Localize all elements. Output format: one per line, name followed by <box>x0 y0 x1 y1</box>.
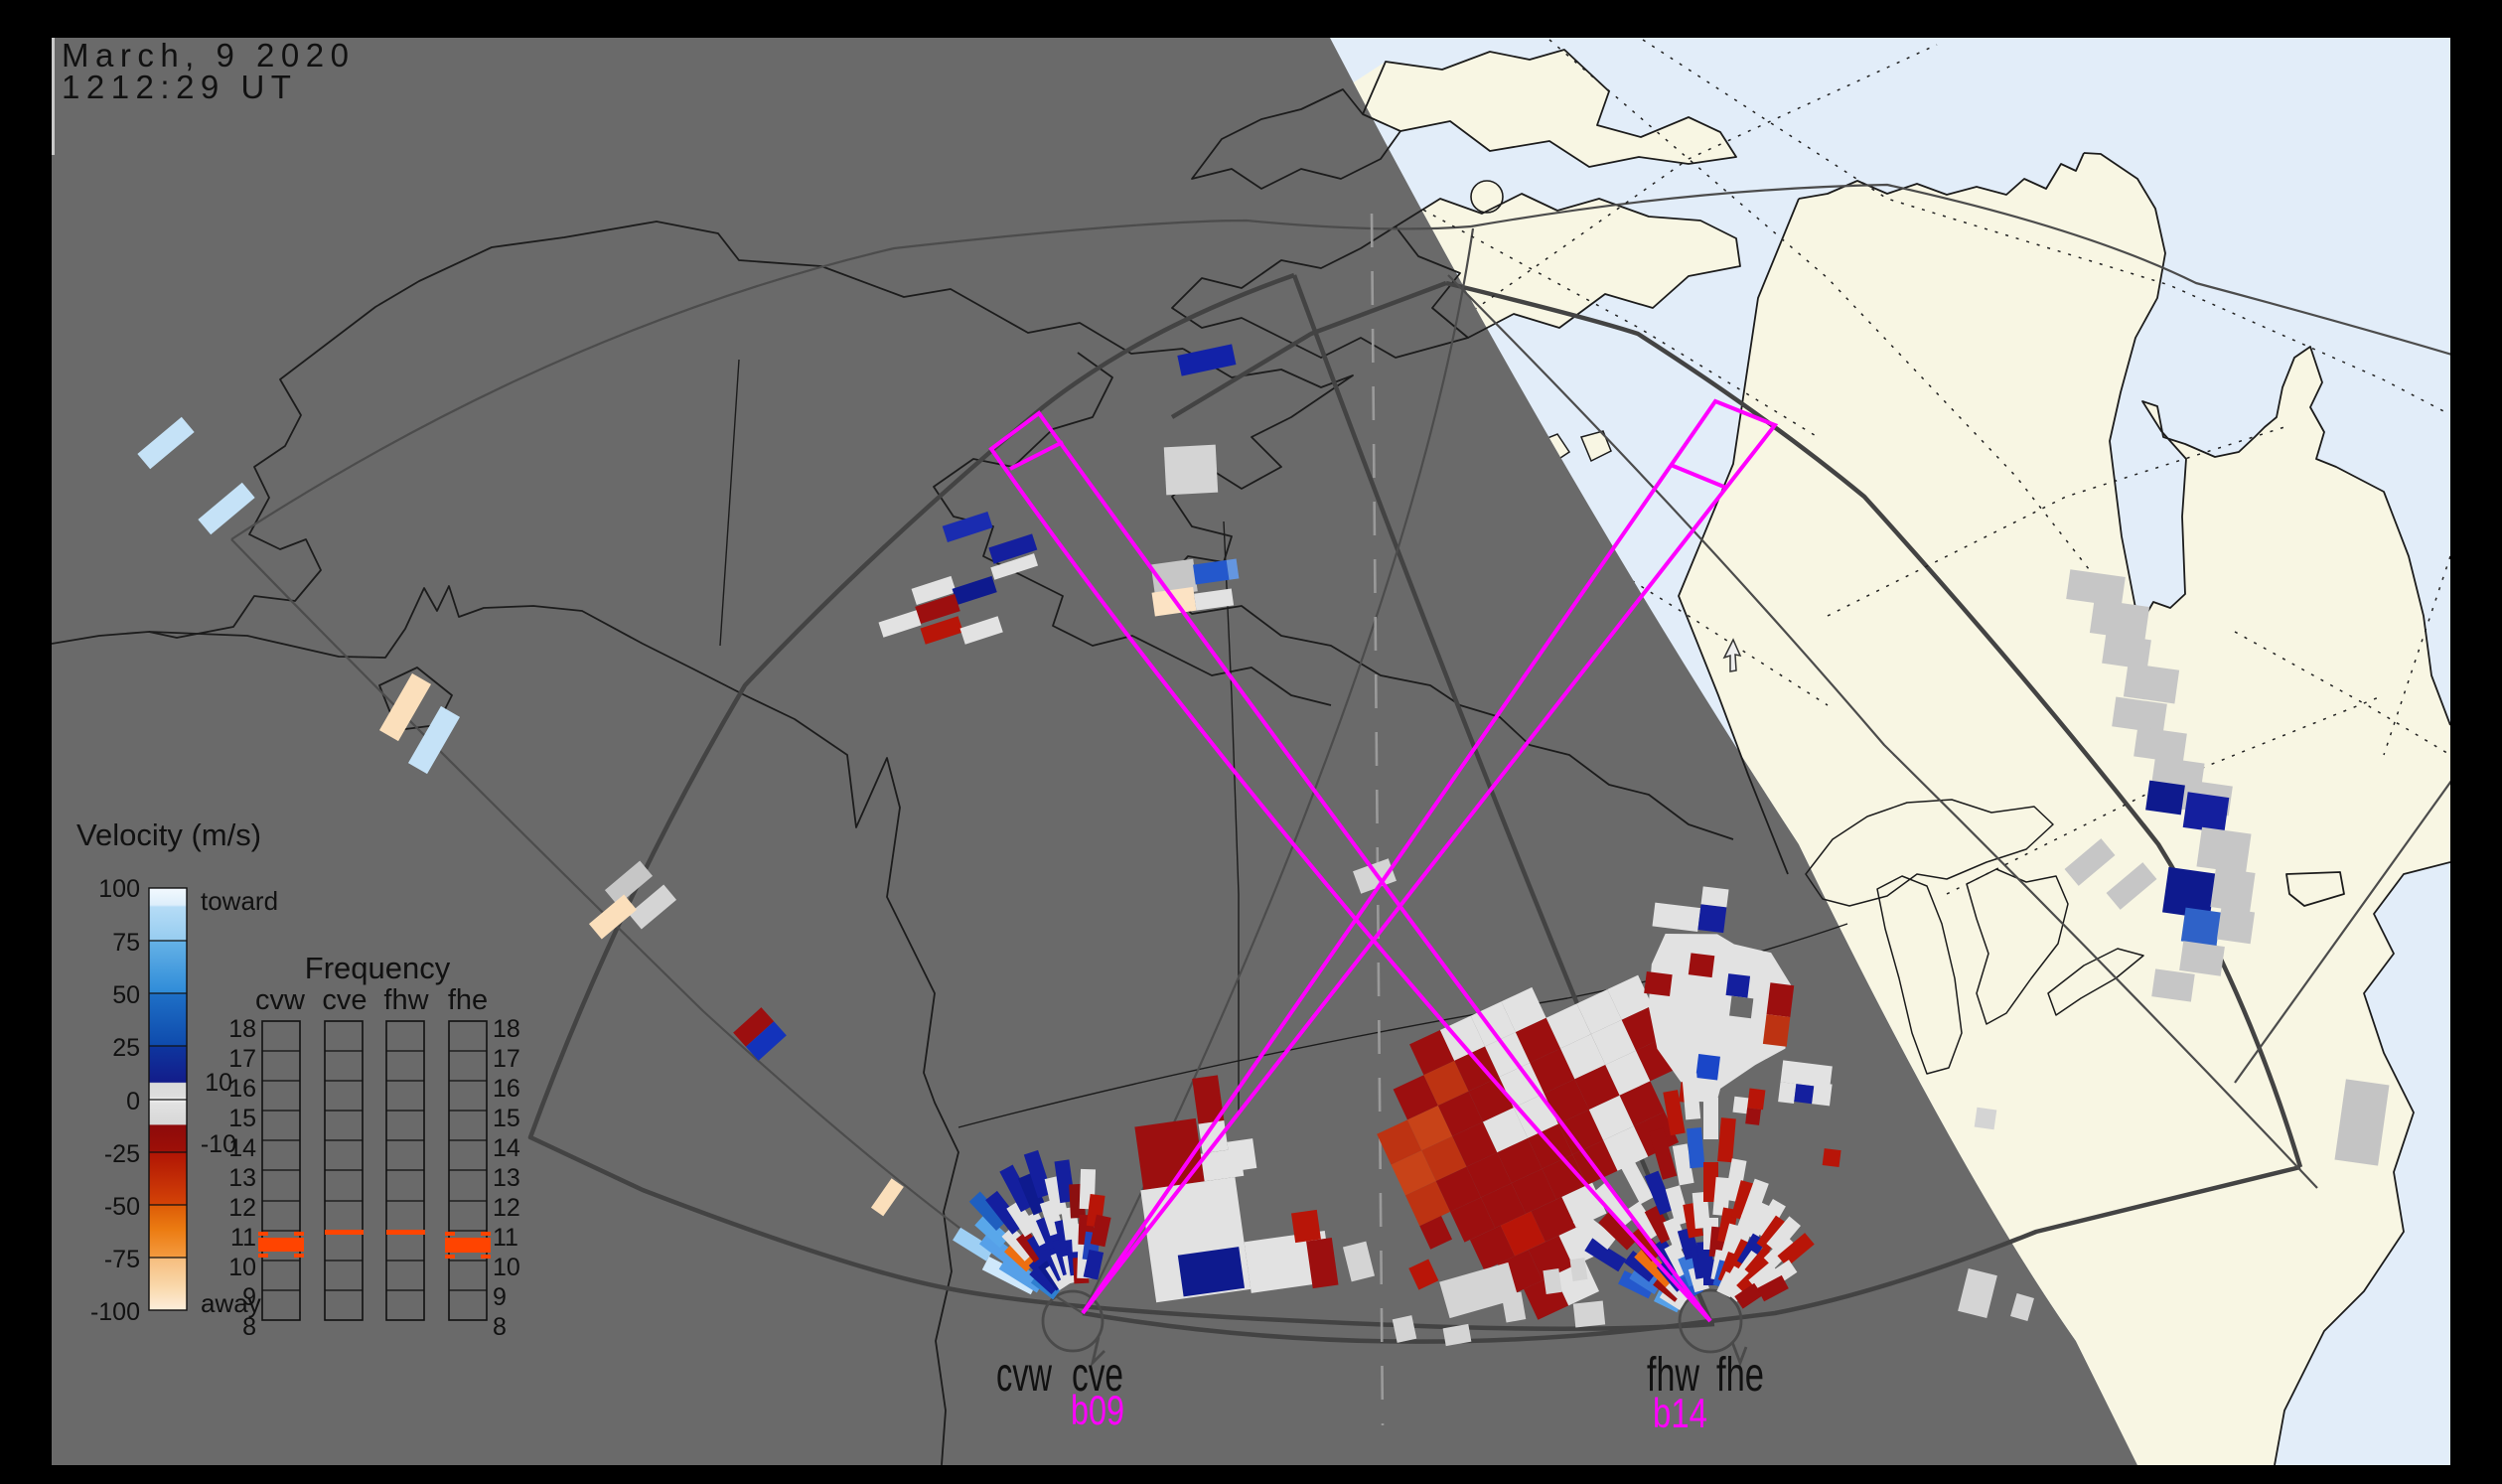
svg-text:25: 25 <box>112 1034 140 1062</box>
svg-text:-75: -75 <box>104 1246 140 1273</box>
svg-text:50: 50 <box>112 981 140 1009</box>
svg-text:16: 16 <box>493 1075 520 1103</box>
svg-text:cvw: cvw <box>255 984 306 1016</box>
svg-text:11: 11 <box>493 1224 518 1252</box>
svg-text:14: 14 <box>493 1134 520 1162</box>
svg-text:b14: b14 <box>1653 1390 1707 1436</box>
svg-text:13: 13 <box>228 1164 256 1192</box>
svg-text:10: 10 <box>228 1254 256 1281</box>
svg-text:b09: b09 <box>1071 1387 1124 1433</box>
svg-text:-25: -25 <box>104 1140 140 1168</box>
svg-text:12: 12 <box>228 1194 256 1222</box>
svg-text:fhw: fhw <box>383 984 429 1016</box>
svg-text:0: 0 <box>126 1088 140 1115</box>
svg-text:18: 18 <box>493 1015 520 1043</box>
svg-text:13: 13 <box>493 1164 520 1192</box>
svg-text:fhe: fhe <box>1716 1349 1764 1402</box>
svg-text:-100: -100 <box>90 1298 140 1326</box>
svg-text:10: 10 <box>205 1069 232 1097</box>
svg-text:16: 16 <box>228 1075 256 1103</box>
svg-text:toward: toward <box>201 886 278 916</box>
svg-text:fhe: fhe <box>448 984 488 1016</box>
svg-text:18: 18 <box>228 1015 256 1043</box>
svg-text:cvw: cvw <box>996 1349 1052 1402</box>
svg-text:75: 75 <box>112 929 140 957</box>
svg-text:Frequency: Frequency <box>305 951 451 985</box>
svg-text:12: 12 <box>493 1194 520 1222</box>
svg-text:-10: -10 <box>201 1130 236 1158</box>
svg-text:8: 8 <box>242 1313 256 1341</box>
svg-text:1212:29 UT: 1212:29 UT <box>62 69 297 105</box>
svg-text:8: 8 <box>493 1313 507 1341</box>
svg-text:100: 100 <box>98 875 140 903</box>
svg-text:15: 15 <box>228 1105 256 1132</box>
svg-text:-50: -50 <box>104 1193 140 1221</box>
svg-text:17: 17 <box>493 1045 520 1073</box>
svg-text:Velocity (m/s): Velocity (m/s) <box>76 817 261 852</box>
svg-text:9: 9 <box>242 1283 256 1311</box>
svg-text:cve: cve <box>322 984 367 1016</box>
svg-text:9: 9 <box>493 1283 507 1311</box>
svg-text:10: 10 <box>493 1254 520 1281</box>
svg-text:11: 11 <box>230 1224 256 1252</box>
svg-text:17: 17 <box>228 1045 256 1073</box>
svg-text:15: 15 <box>493 1105 520 1132</box>
